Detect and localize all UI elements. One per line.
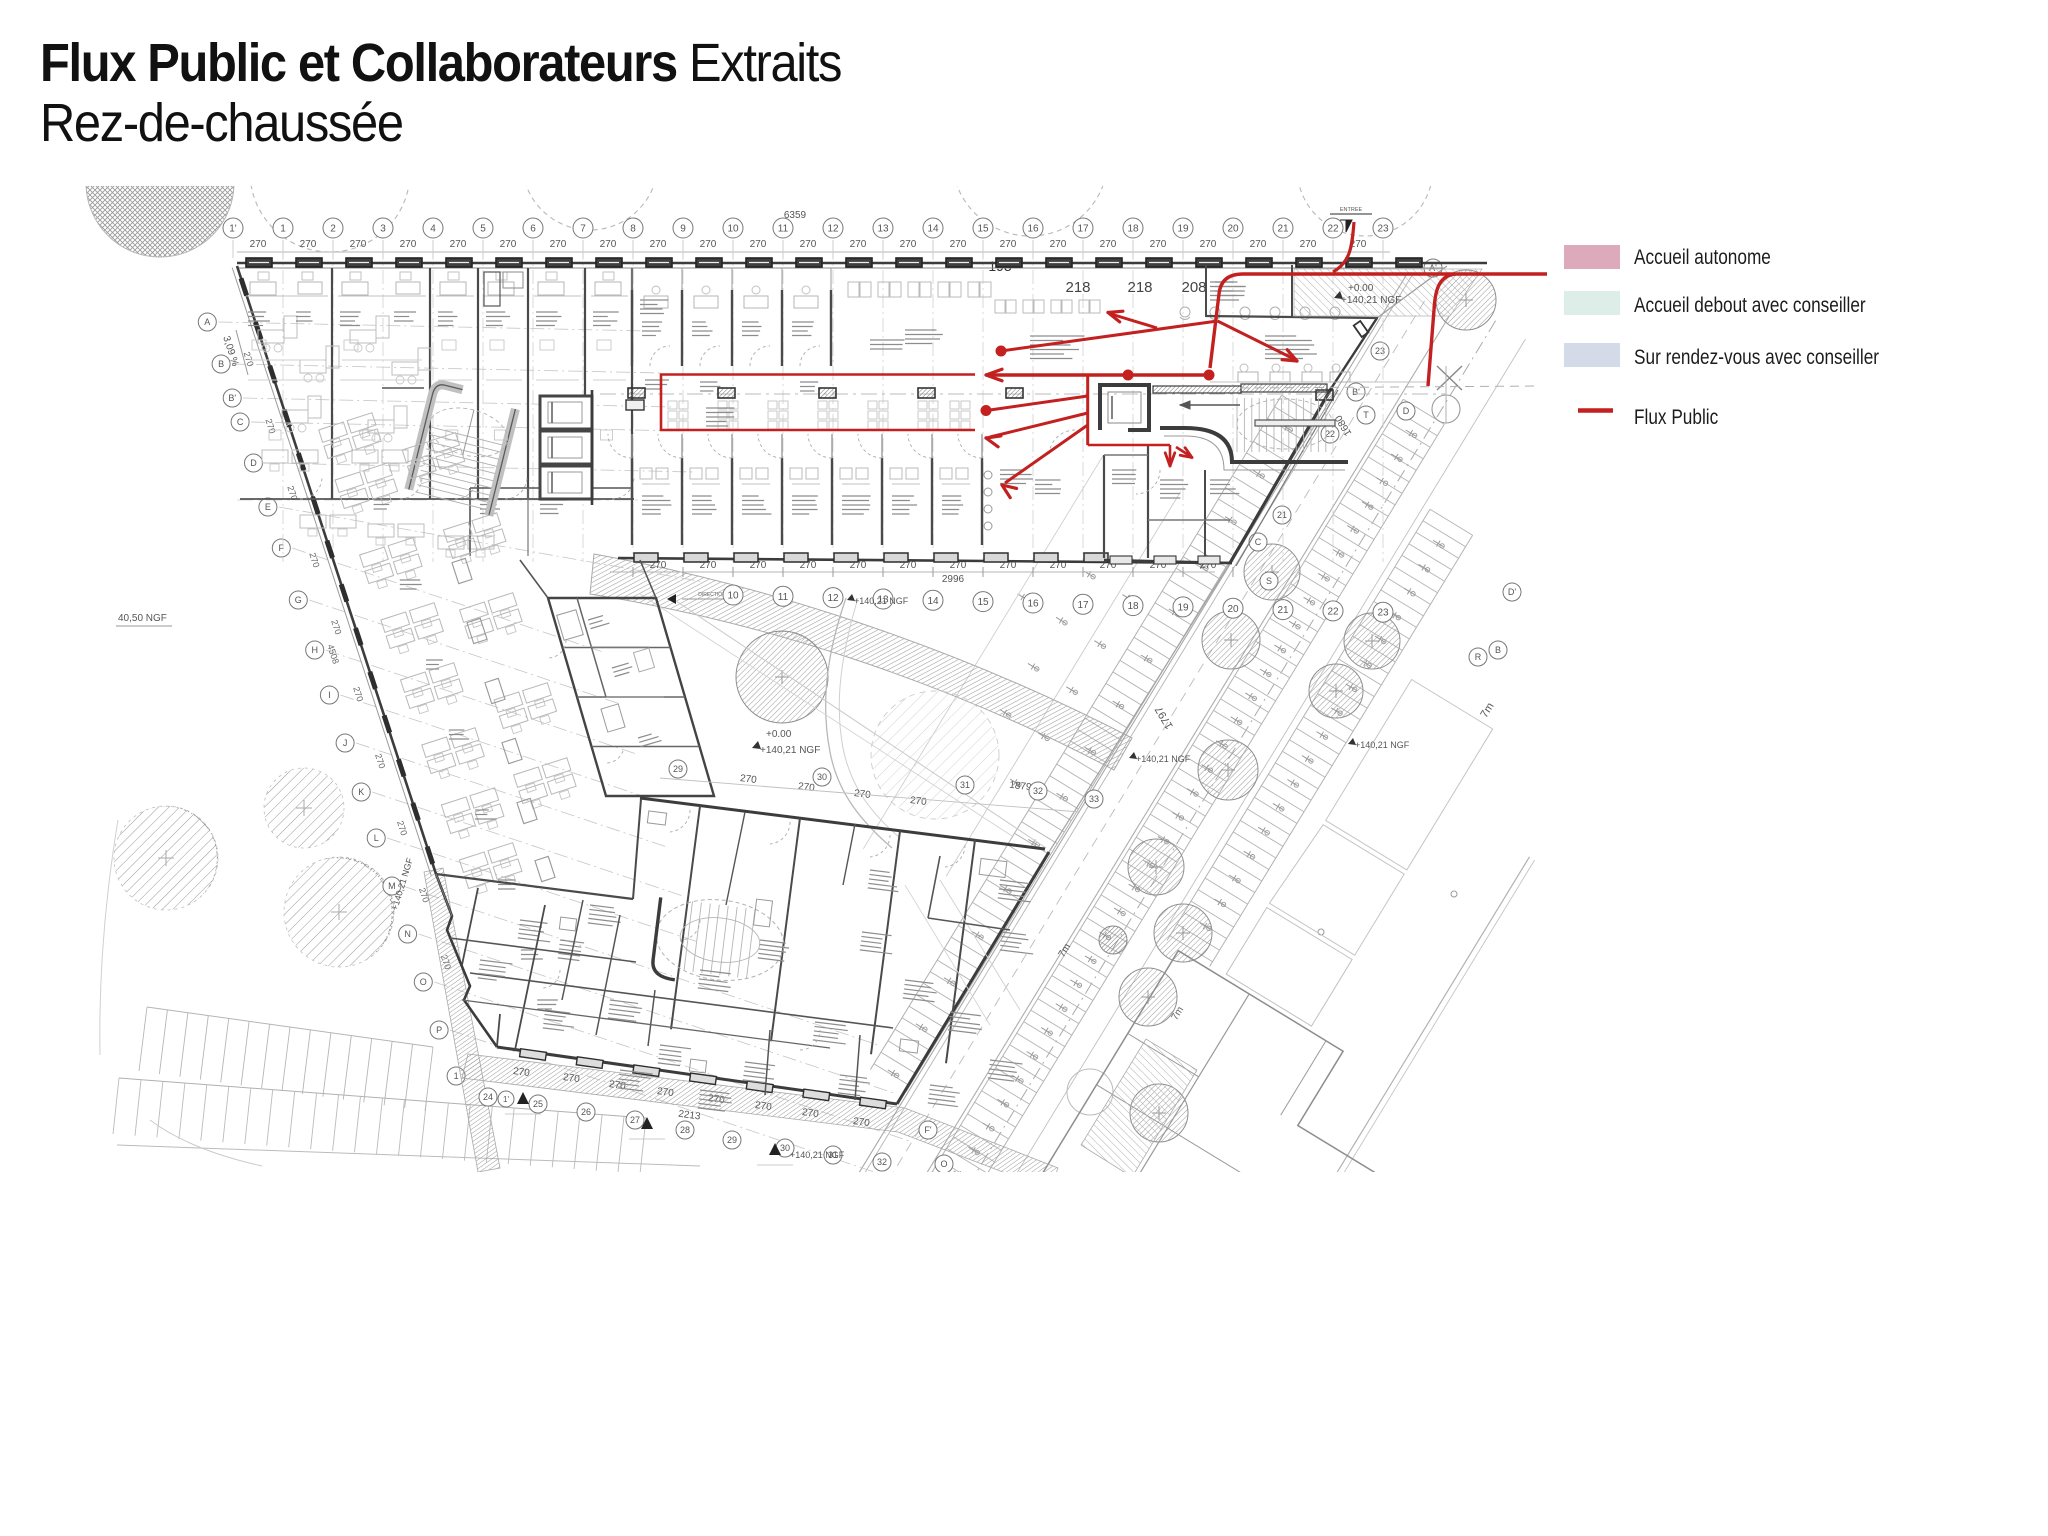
svg-text:270: 270: [250, 239, 267, 250]
svg-text:6: 6: [530, 224, 536, 235]
svg-text:270: 270: [1250, 239, 1267, 250]
svg-text:21: 21: [1277, 224, 1289, 235]
svg-text:12: 12: [827, 224, 839, 235]
svg-text:30: 30: [817, 772, 827, 782]
svg-text:7m: 7m: [1478, 701, 1496, 720]
svg-text:270: 270: [300, 239, 317, 250]
svg-text:1797: 1797: [1153, 704, 1176, 731]
svg-text:H: H: [311, 645, 318, 655]
svg-text:2996: 2996: [942, 574, 965, 585]
svg-text:4508: 4508: [325, 643, 341, 665]
svg-text:270: 270: [797, 781, 815, 794]
svg-text:270: 270: [307, 551, 321, 568]
svg-text:270: 270: [600, 239, 617, 250]
svg-text:24: 24: [483, 1092, 493, 1102]
svg-text:270: 270: [350, 239, 367, 250]
svg-text:270: 270: [500, 239, 517, 250]
svg-text:D: D: [1403, 406, 1410, 416]
svg-text:27: 27: [630, 1115, 640, 1125]
svg-text:2: 2: [330, 224, 336, 235]
svg-text:20: 20: [1227, 224, 1239, 235]
svg-text:13: 13: [877, 224, 889, 235]
svg-text:9: 9: [680, 224, 686, 235]
svg-text:270: 270: [950, 239, 967, 250]
svg-text:270: 270: [1150, 239, 1167, 250]
svg-text:C: C: [237, 417, 244, 427]
svg-text:17: 17: [1077, 224, 1089, 235]
svg-text:D': D': [1508, 587, 1516, 597]
svg-text:28: 28: [680, 1125, 690, 1135]
svg-text:DIRECTION: DIRECTION: [698, 592, 726, 598]
svg-text:270: 270: [1300, 239, 1317, 250]
svg-text:29: 29: [727, 1135, 737, 1145]
svg-text:O: O: [420, 977, 427, 987]
svg-text:270: 270: [1200, 239, 1217, 250]
svg-text:B': B': [1352, 387, 1360, 397]
svg-text:270: 270: [1100, 239, 1117, 250]
svg-text:270: 270: [550, 239, 567, 250]
svg-text:A: A: [204, 317, 210, 327]
svg-text:10: 10: [727, 591, 739, 602]
svg-text:16: 16: [1027, 224, 1039, 235]
svg-text:26: 26: [581, 1107, 591, 1117]
svg-text:T: T: [1363, 410, 1369, 420]
svg-text:E: E: [265, 502, 271, 512]
svg-text:I: I: [328, 690, 331, 700]
svg-text:33: 33: [1089, 794, 1099, 804]
svg-text:218: 218: [1065, 279, 1090, 296]
svg-text:+140,21 NGF: +140,21 NGF: [1341, 295, 1401, 306]
svg-text:270: 270: [373, 752, 387, 769]
svg-text:+140,21 NGF: +140,21 NGF: [1355, 740, 1410, 750]
svg-text:5: 5: [480, 224, 486, 235]
svg-text:270: 270: [750, 239, 767, 250]
svg-text:D: D: [250, 458, 257, 468]
svg-text:270: 270: [800, 239, 817, 250]
svg-text:270: 270: [395, 819, 409, 836]
svg-text:15: 15: [977, 597, 989, 608]
svg-text:15: 15: [977, 224, 989, 235]
svg-text:B: B: [1495, 645, 1501, 655]
svg-text:40,50 NGF: 40,50 NGF: [118, 613, 167, 624]
svg-text:218: 218: [1127, 279, 1152, 296]
svg-text:270: 270: [900, 239, 917, 250]
svg-text:22: 22: [1325, 429, 1335, 439]
svg-text:J: J: [343, 738, 348, 748]
svg-text:29: 29: [673, 764, 683, 774]
svg-text:L: L: [374, 833, 379, 843]
svg-text:G: G: [295, 595, 302, 605]
svg-text:23: 23: [1375, 346, 1385, 356]
svg-text:+140,21 NGF: +140,21 NGF: [790, 1150, 845, 1160]
svg-text:12: 12: [827, 593, 839, 604]
svg-text:18: 18: [1127, 601, 1139, 612]
svg-text:B': B': [228, 393, 236, 403]
svg-text:270: 270: [1050, 239, 1067, 250]
svg-text:270: 270: [351, 685, 365, 702]
svg-text:F: F: [279, 543, 285, 553]
svg-text:11: 11: [778, 592, 789, 603]
svg-text:20: 20: [1227, 604, 1239, 615]
svg-text:N: N: [404, 929, 411, 939]
svg-text:270: 270: [263, 417, 277, 434]
svg-text:270: 270: [852, 1116, 870, 1129]
svg-text:270: 270: [850, 239, 867, 250]
svg-text:10: 10: [727, 224, 739, 235]
svg-text:16: 16: [1027, 599, 1039, 610]
svg-text:1': 1': [229, 224, 237, 235]
svg-text:7: 7: [580, 224, 586, 235]
svg-text:+140,21 NGF: +140,21 NGF: [854, 596, 909, 606]
svg-text:21: 21: [1277, 510, 1287, 520]
svg-text:25: 25: [533, 1099, 543, 1109]
svg-text:8: 8: [630, 224, 636, 235]
svg-text:4: 4: [430, 224, 436, 235]
svg-text:18: 18: [1127, 224, 1139, 235]
svg-text:R: R: [1475, 652, 1482, 662]
svg-text:6359: 6359: [784, 210, 807, 221]
svg-text:ENTREE: ENTREE: [1340, 207, 1363, 213]
svg-text:270: 270: [650, 239, 667, 250]
svg-text:208: 208: [1181, 279, 1206, 296]
svg-text:+140,21 NGF: +140,21 NGF: [1136, 754, 1191, 764]
svg-text:O: O: [940, 1159, 947, 1169]
svg-text:32: 32: [877, 1157, 887, 1167]
svg-text:14: 14: [927, 224, 939, 235]
svg-text:270: 270: [909, 795, 927, 808]
svg-text:+0.00: +0.00: [766, 729, 792, 740]
svg-text:31: 31: [960, 780, 970, 790]
svg-text:19: 19: [1177, 602, 1189, 613]
svg-text:1': 1': [503, 1095, 509, 1104]
svg-text:3: 3: [380, 224, 386, 235]
svg-text:270: 270: [739, 773, 757, 786]
svg-text:2213: 2213: [678, 1109, 702, 1123]
svg-text:K: K: [358, 787, 364, 797]
svg-text:270: 270: [400, 239, 417, 250]
svg-text:30: 30: [780, 1143, 790, 1153]
svg-text:270: 270: [700, 239, 717, 250]
svg-text:23: 23: [1377, 224, 1389, 235]
svg-text:C: C: [1255, 537, 1262, 547]
svg-text:23: 23: [1377, 608, 1389, 619]
svg-text:32: 32: [1033, 786, 1043, 796]
svg-text:+0.00: +0.00: [1348, 283, 1374, 294]
svg-text:S: S: [1266, 576, 1272, 586]
svg-text:270: 270: [450, 239, 467, 250]
svg-text:P: P: [436, 1025, 442, 1035]
svg-text:1: 1: [280, 224, 286, 235]
svg-text:21: 21: [1277, 605, 1289, 616]
svg-text:1: 1: [454, 1071, 459, 1081]
svg-text:14: 14: [927, 596, 939, 607]
svg-text:22: 22: [1327, 224, 1339, 235]
svg-text:270: 270: [1000, 239, 1017, 250]
svg-text:17: 17: [1077, 600, 1089, 611]
svg-text:270: 270: [329, 618, 343, 635]
svg-text:11: 11: [778, 224, 789, 235]
svg-text:19: 19: [1177, 224, 1189, 235]
svg-text:+140,21 NGF: +140,21 NGF: [760, 745, 820, 756]
svg-text:F': F': [924, 1125, 931, 1135]
svg-text:22: 22: [1327, 606, 1339, 617]
svg-text:B: B: [218, 359, 224, 369]
